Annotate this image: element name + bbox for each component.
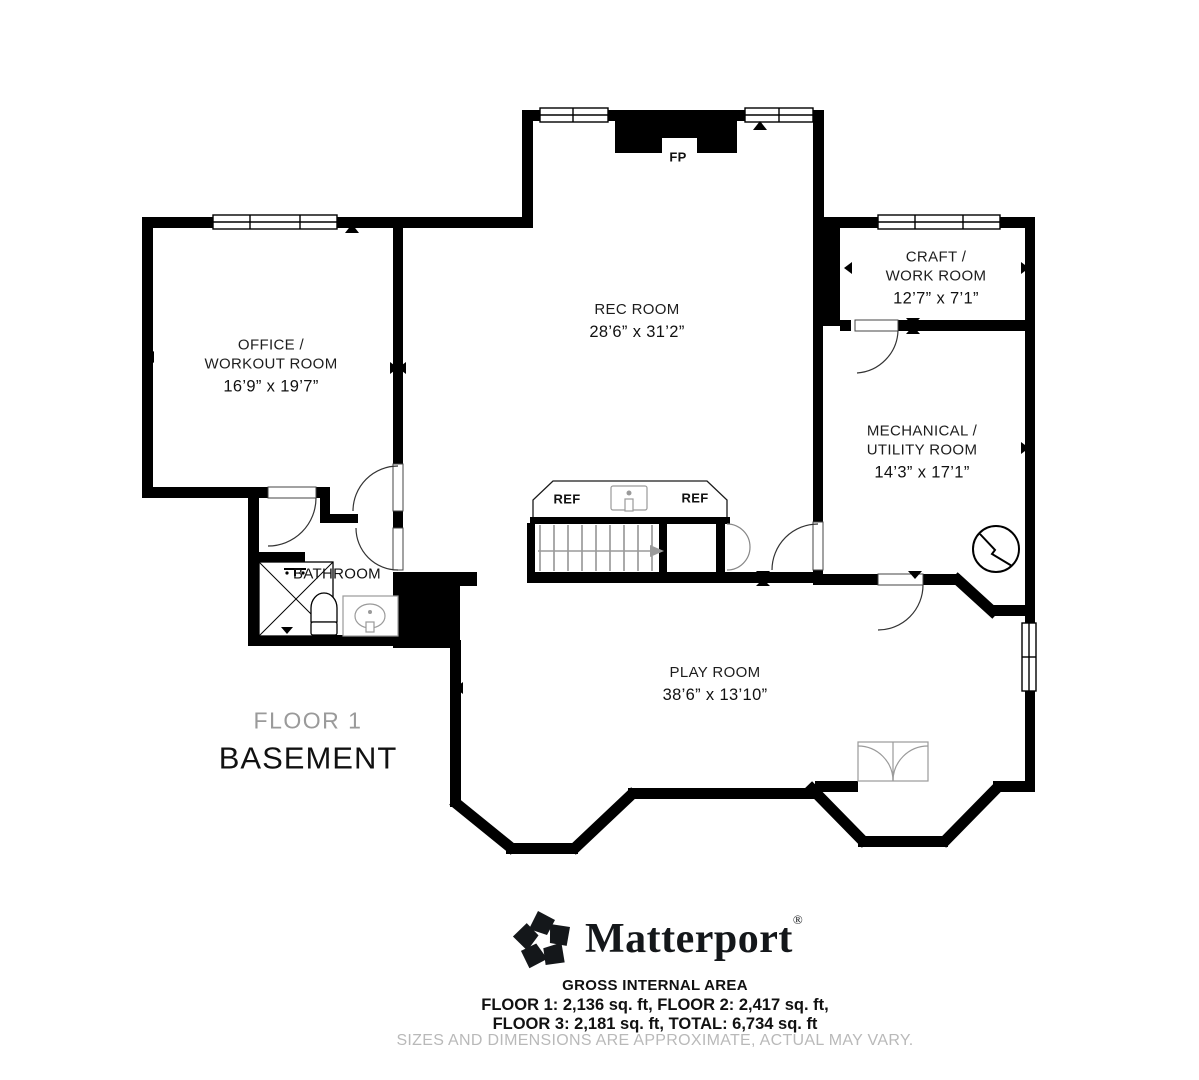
fireplace-label: FP <box>669 150 686 165</box>
door-swing-office <box>268 498 316 546</box>
stairs <box>538 525 664 571</box>
bifold-closet-doors <box>727 524 750 570</box>
area-line-1: FLOOR 1: 2,136 sq. ft, FLOOR 2: 2,417 sq… <box>481 996 829 1015</box>
window-rec-left <box>540 108 608 122</box>
window-craft <box>878 215 1000 229</box>
matterport-logo-icon <box>510 911 575 973</box>
room-label-craft: CRAFT / WORK ROOM 12’7” x 7’1” <box>886 248 987 309</box>
water-heater <box>973 526 1019 572</box>
door-leaf-office <box>268 487 316 498</box>
door-swing-hall-rec <box>353 466 398 511</box>
disclaimer: SIZES AND DIMENSIONS ARE APPROXIMATE, AC… <box>396 1032 913 1050</box>
room-label-play: PLAY ROOM 38’6” x 13’10” <box>663 663 768 705</box>
floor-number: FLOOR 1 <box>219 708 398 735</box>
vanity-sink <box>343 596 398 636</box>
floorplan-page: FP REF REF OFFICE / WORKOUT ROOM 16’9” x… <box>0 0 1199 1080</box>
registered-mark: ® <box>793 912 803 927</box>
fridge-left-label: REF <box>554 492 581 507</box>
floor-name: BASEMENT <box>219 741 398 777</box>
window-office <box>213 215 337 229</box>
door-leaf-hall-rec <box>393 464 403 511</box>
door-leaf-craft <box>855 320 898 331</box>
door-swing-utility-play <box>878 585 923 630</box>
window-play-right <box>1022 623 1036 691</box>
angled-walls-group <box>457 580 996 847</box>
door-leaf-bathroom <box>393 528 403 570</box>
matterport-wordmark: Matterport® <box>585 912 803 963</box>
room-label-office: OFFICE / WORKOUT ROOM 16’9” x 19’7” <box>204 336 337 397</box>
door-swing-craft <box>857 331 898 373</box>
window-rec-right <box>745 108 813 122</box>
door-swing-utility-rec <box>772 524 818 570</box>
toilet <box>311 593 337 635</box>
room-label-mechanical: MECHANICAL / UTILITY ROOM 14’3” x 17’1” <box>867 422 978 483</box>
gross-area-title: GROSS INTERNAL AREA <box>562 977 748 994</box>
room-label-bathroom: BATHROOM <box>293 566 381 583</box>
bar-sink <box>611 486 647 511</box>
door-leaf-utility-rec <box>813 522 823 570</box>
french-doors-bay <box>858 742 928 781</box>
room-label-rec: REC ROOM 28’6” x 31’2” <box>589 300 684 342</box>
fridge-right-label: REF <box>682 491 709 506</box>
door-swing-bathroom <box>356 528 398 570</box>
floor-indicator: FLOOR 1 BASEMENT <box>219 708 398 777</box>
